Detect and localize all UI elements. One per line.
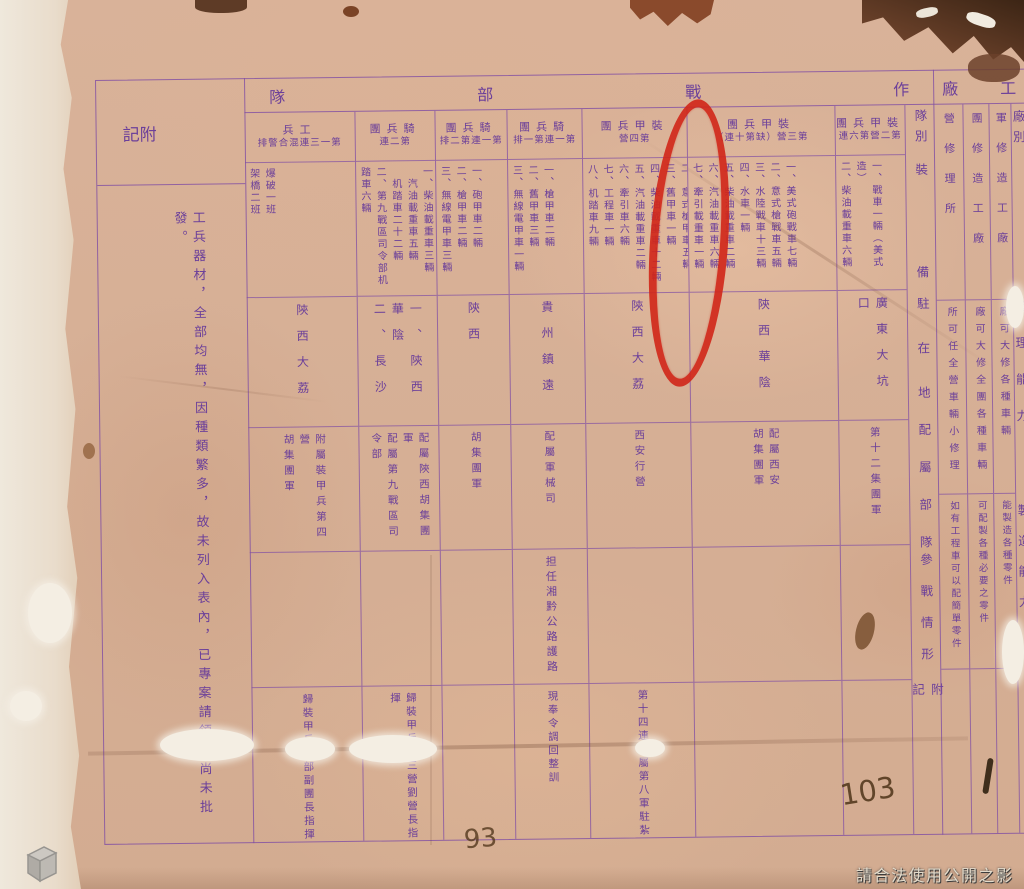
unit-column: 騎兵團第一連第一排一、槍甲車二輛 二、舊甲車三輛 三、無線電甲車一輛貴州鎮遠配屬…	[506, 109, 590, 839]
equipment-cell: 爆破一班 架橋二班	[245, 162, 357, 298]
combat-status-cell	[841, 545, 912, 681]
manufacture-capability-cell: 可配製各種必要之零件	[968, 494, 996, 669]
repair-capability-cell: 所可任全營車輛小修理	[937, 300, 967, 494]
attached-unit-cell: 附屬裝甲兵第四營 胡集團軍	[248, 427, 360, 553]
paper-damage-patch	[1006, 286, 1024, 328]
factory-name: 營修理所	[940, 104, 958, 299]
empty-cell	[997, 669, 1020, 834]
equipment-text: 一、砲甲車二輛 二、槍甲車二輛 三、無線電甲車三輛	[436, 160, 487, 295]
remark-cell	[694, 681, 843, 838]
paper-damage-patch	[10, 691, 42, 721]
unit-subunit: 第一連第一排	[508, 134, 582, 147]
torn-top-right-corner	[862, 0, 1024, 62]
repair-capability-text: 所可任全營車輛小修理	[943, 300, 960, 493]
unit-header-cell: 裝甲兵團第二營第六連	[835, 105, 905, 156]
remarks-header: 附記	[96, 79, 245, 186]
unit-subunit: 第二連	[356, 136, 435, 149]
unit-name: 裝甲兵團	[836, 117, 905, 132]
remark-text: 第十四連配屬第八軍駐紮	[634, 689, 652, 838]
unit-column: 騎兵團第一連第二排一、砲甲車二輛 二、槍甲車二輛 三、無線電甲車三輛陝西胡集團軍	[434, 110, 515, 840]
brown-stain	[195, 0, 247, 13]
combat-status-cell	[588, 548, 694, 684]
small-stain	[83, 443, 95, 459]
combat-status-cell: 担任湘黔公路護路	[513, 549, 589, 685]
combat-status-cell	[250, 552, 362, 688]
equipment-cell: 一、砲甲車二輛 二、槍甲車二輛 三、無線電甲車三輛	[436, 160, 509, 296]
remark-cell: 第十四連配屬第八軍駐紮	[589, 683, 695, 839]
paper-damage-patch	[28, 583, 72, 643]
factory-name-cell: 營修理所	[934, 104, 964, 300]
attached-unit-cell: 胡集團軍	[439, 425, 512, 551]
brown-stain	[968, 54, 1020, 82]
title-char: 作	[893, 76, 909, 100]
unit-subunit: 第一三連混合警排	[245, 137, 355, 151]
factory-name: 團修造工廠	[968, 104, 986, 299]
copyright-watermark: 請合法使用公開之影像	[856, 862, 1024, 889]
equipment-text: 一、槍甲車二輛 二、舊甲車三輛 三、無線電甲車一輛	[508, 159, 559, 294]
attached-unit-cell: 配屬西安 胡集團軍	[691, 421, 840, 548]
unit-subunit: 第二營第六連	[836, 130, 905, 143]
unit-header-cell: 騎兵團第一連第二排	[435, 110, 507, 161]
remark-cell	[842, 680, 913, 836]
location-text: 廣東大坑口	[854, 296, 892, 419]
remark-text: 歸裝甲兵團部副團長指揮	[299, 693, 317, 842]
combat-status-cell	[441, 550, 514, 686]
combat-text: 担任湘黔公路護路	[542, 555, 560, 675]
attached-text: 配屬陝西胡集團軍 配屬第九戰區司令部	[367, 432, 431, 551]
paper-damage-patch	[160, 729, 254, 761]
attached-text: 配屬軍械司	[540, 430, 557, 508]
unit-header-cell: 騎兵團第一連第一排	[507, 109, 582, 160]
unit-header-cell: 工兵第一三連混合警排	[244, 112, 355, 163]
paper-damage-patch	[285, 737, 335, 761]
location-text: 陝西大荔	[628, 299, 647, 403]
location-cell: 陝西大荔	[247, 297, 359, 428]
unit-name: 騎兵團	[508, 121, 582, 136]
brown-stain	[343, 6, 359, 17]
attached-text: 第十二集團軍	[866, 426, 883, 519]
location-text: 一、陝西華陰 二、長沙	[370, 302, 425, 426]
remark-text: 現奉令調回整訓	[544, 690, 561, 785]
row-label: 廠別	[1009, 110, 1024, 151]
attached-text: 配屬西安 胡集團軍	[749, 428, 781, 490]
factory-name-cell: 團修造工廠	[963, 104, 991, 300]
row-label: 配屬部隊	[914, 423, 935, 573]
unit-status-table: 附記 工兵器材，全部均無，因種類繁多，故未列入表內，已專案請領，尚未批發。 作戰…	[95, 69, 1024, 845]
combat-units-section: 作戰部隊 工兵第一三連混合警排爆破一班 架橋二班陝西大荔附屬裝甲兵第四營 胡集團…	[244, 70, 943, 843]
unit-column: 裝甲兵團第二營第六連一、戰車一輛（美式造） 二、柴油載重車六輛廣東大坑口第十二集…	[834, 105, 913, 835]
repair-capability-cell: 廠可大修全團各種車輛	[965, 300, 993, 494]
repair-capability-text: 廠可大修全團各種車輛	[971, 300, 988, 493]
row-label: 製造能力	[1013, 504, 1024, 626]
location-cell: 陝西	[438, 295, 511, 426]
location-cell: 一、陝西華陰 二、長沙	[358, 296, 439, 427]
location-text: 陝西大荔	[293, 303, 312, 407]
remark-cell: 現奉令調回整訓	[514, 684, 590, 840]
location-text: 陝西	[464, 301, 483, 353]
empty-cell	[970, 669, 998, 834]
empty-cell	[941, 669, 971, 834]
paper-damage-patch	[1002, 620, 1024, 684]
equipment-text: 爆破一班 架橋二班	[245, 163, 281, 297]
unit-header-cell: 騎兵團第二連	[355, 111, 435, 162]
combat-section-body: 工兵第一三連混合警排爆破一班 架橋二班陝西大荔附屬裝甲兵第四營 胡集團軍歸裝甲兵…	[244, 105, 943, 842]
title-char: 部	[477, 81, 493, 105]
location-cell: 貴州鎮遠	[510, 294, 586, 425]
location-cell: 廣東大坑口	[838, 290, 909, 421]
manufacture-capability-text: 如有工程車可以配簡單零件	[946, 494, 962, 668]
archive-logo-icon	[22, 843, 58, 883]
remarks-section: 附記 工兵器材，全部均無，因種類繁多，故未列入表內，已專案請領，尚未批發。	[95, 78, 254, 845]
remark-text: 歸裝甲兵團三營劉營長指揮	[386, 692, 419, 841]
remark-cell: 歸裝甲兵團部副團長指揮	[251, 687, 363, 843]
attached-unit-cell: 第十二集團軍	[839, 420, 910, 546]
torn-top-edge-stain	[630, 0, 714, 26]
attached-text: 胡集團軍	[467, 431, 484, 493]
unit-name: 騎兵團	[436, 121, 507, 136]
unit-subunit: 第一連第二排	[436, 135, 507, 148]
manufacture-capability-cell: 如有工程車可以配簡單零件	[939, 494, 969, 669]
paper-crease	[430, 555, 432, 845]
paper-damage-patch	[349, 735, 437, 763]
equipment-text: 一、柴油載重車三輛 汽油載重車五輛 机踏車二十二輛 二、第九戰區司令部机踏車六輛	[356, 161, 437, 296]
combat-status-cell	[693, 546, 842, 683]
equipment-cell: 一、柴油載重車三輛 汽油載重車五輛 机踏車二十二輛 二、第九戰區司令部机踏車六輛	[356, 161, 437, 297]
attached-unit-cell: 配屬軍械司	[511, 424, 587, 550]
scanned-document-page: 附記 工兵器材，全部均無，因種類繁多，故未列入表內，已專案請領，尚未批發。 作戰…	[0, 0, 1024, 889]
attached-unit-cell: 配屬陝西胡集團軍 配屬第九戰區司令部	[359, 426, 440, 552]
attached-text: 附屬裝甲兵第四營 胡集團軍	[280, 433, 329, 552]
title-char: 廠	[942, 75, 958, 99]
torn-left-paper-edge	[0, 0, 92, 889]
unit-name: 騎兵團	[356, 122, 435, 137]
repair-capability-text: 廠可大修各種車輛	[995, 300, 1012, 493]
unit-column: 工兵第一三連混合警排爆破一班 架橋二班陝西大荔附屬裝甲兵第四營 胡集團軍歸裝甲兵…	[244, 112, 363, 842]
manufacture-capability-text: 可配製各種必要之零件	[974, 494, 990, 668]
row-label: 隊別	[910, 109, 929, 150]
attached-text: 西安行營	[630, 429, 647, 491]
factory-section: 工廠 營修理所所可任全營車輛小修理如有工程車可以配簡單零件團修造工廠廠可大修全團…	[933, 69, 1024, 835]
location-text: 貴州鎮遠	[538, 300, 557, 404]
row-label: 參戰情形	[916, 553, 937, 679]
equipment-cell: 一、槍甲車二輛 二、舊甲車三輛 三、無線電甲車一輛	[508, 159, 584, 295]
attached-unit-cell: 西安行營	[586, 423, 692, 549]
paper-damage-patch	[635, 739, 665, 757]
remark-cell	[442, 685, 515, 841]
factory-section-body: 營修理所所可任全營車輛小修理如有工程車可以配簡單零件團修造工廠廠可大修全團各種車…	[934, 104, 1024, 834]
location-text: 陝西華陰	[754, 298, 773, 402]
bottom-page-number: 93	[463, 823, 499, 856]
title-char: 隊	[269, 83, 285, 107]
factory-name: 軍修造工廠	[992, 104, 1010, 299]
